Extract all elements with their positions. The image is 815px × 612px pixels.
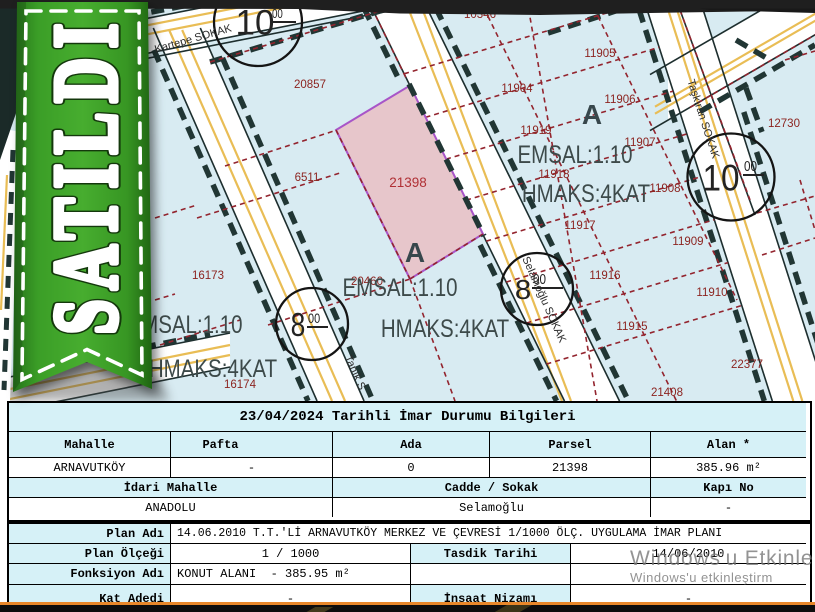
svg-text:HMAKS:4KAT: HMAKS:4KAT xyxy=(522,179,650,207)
svg-text:11905: 11905 xyxy=(584,48,615,60)
svg-text:EMSAL:1.10: EMSAL:1.10 xyxy=(517,140,632,168)
svg-text:A: A xyxy=(582,99,602,130)
svg-text:HMAKS:4KAT: HMAKS:4KAT xyxy=(381,314,509,342)
svg-text:21398: 21398 xyxy=(389,175,427,190)
svg-text:11910: 11910 xyxy=(696,287,727,299)
svg-text:11916: 11916 xyxy=(589,270,620,282)
svg-text:SATILDI: SATILDI xyxy=(35,14,135,334)
svg-text:20857: 20857 xyxy=(294,79,326,91)
svg-text:EMSAL:1.10: EMSAL:1.10 xyxy=(342,273,457,301)
svg-text:11919: 11919 xyxy=(520,125,551,137)
svg-text:00: 00 xyxy=(308,311,320,327)
svg-text:22377: 22377 xyxy=(731,359,763,371)
svg-text:10: 10 xyxy=(702,158,739,199)
svg-text:00: 00 xyxy=(272,8,283,21)
svg-text:8: 8 xyxy=(291,307,306,343)
svg-text:11917: 11917 xyxy=(564,220,595,232)
svg-text:11906: 11906 xyxy=(604,94,635,106)
svg-text:A: A xyxy=(405,237,425,268)
svg-text:11915: 11915 xyxy=(616,321,647,333)
svg-text:12730: 12730 xyxy=(768,118,800,130)
svg-text:00: 00 xyxy=(744,158,757,175)
svg-text:11908: 11908 xyxy=(649,183,680,195)
svg-text:21408: 21408 xyxy=(651,387,683,399)
svg-text:11904: 11904 xyxy=(501,83,533,95)
svg-text:6511: 6511 xyxy=(295,172,320,184)
svg-text:10: 10 xyxy=(236,4,275,43)
svg-text:11909: 11909 xyxy=(672,236,703,248)
